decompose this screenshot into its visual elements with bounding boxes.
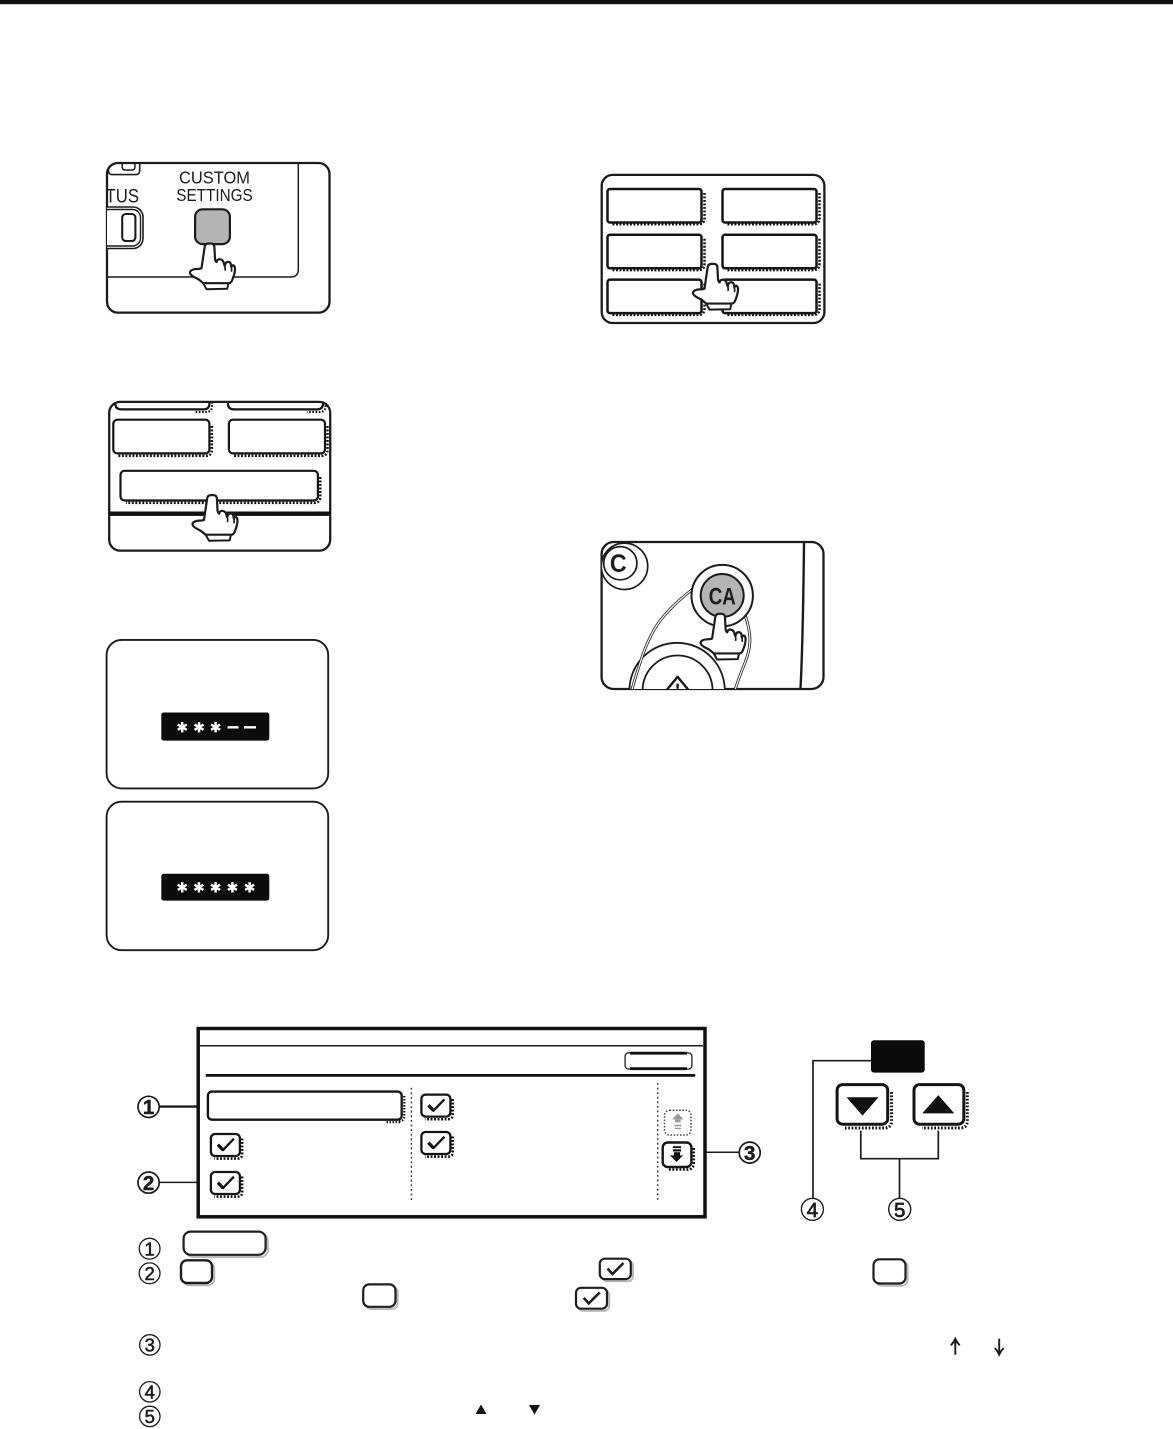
- svg-text:5: 5: [145, 1406, 155, 1427]
- svg-text:3: 3: [744, 1142, 755, 1165]
- svg-text:2: 2: [143, 1172, 154, 1195]
- svg-text:CA: CA: [709, 584, 736, 611]
- svg-text:4: 4: [807, 1199, 818, 1222]
- svg-text:5: 5: [894, 1199, 905, 1222]
- svg-text:2: 2: [144, 1263, 154, 1284]
- svg-text:4: 4: [145, 1381, 155, 1402]
- svg-text:1: 1: [143, 1096, 154, 1119]
- svg-text:TUS: TUS: [106, 187, 140, 208]
- svg-text:3: 3: [145, 1335, 155, 1356]
- svg-text:1: 1: [144, 1238, 154, 1259]
- svg-text:C: C: [610, 550, 627, 578]
- svg-text:SETTINGS: SETTINGS: [176, 185, 253, 205]
